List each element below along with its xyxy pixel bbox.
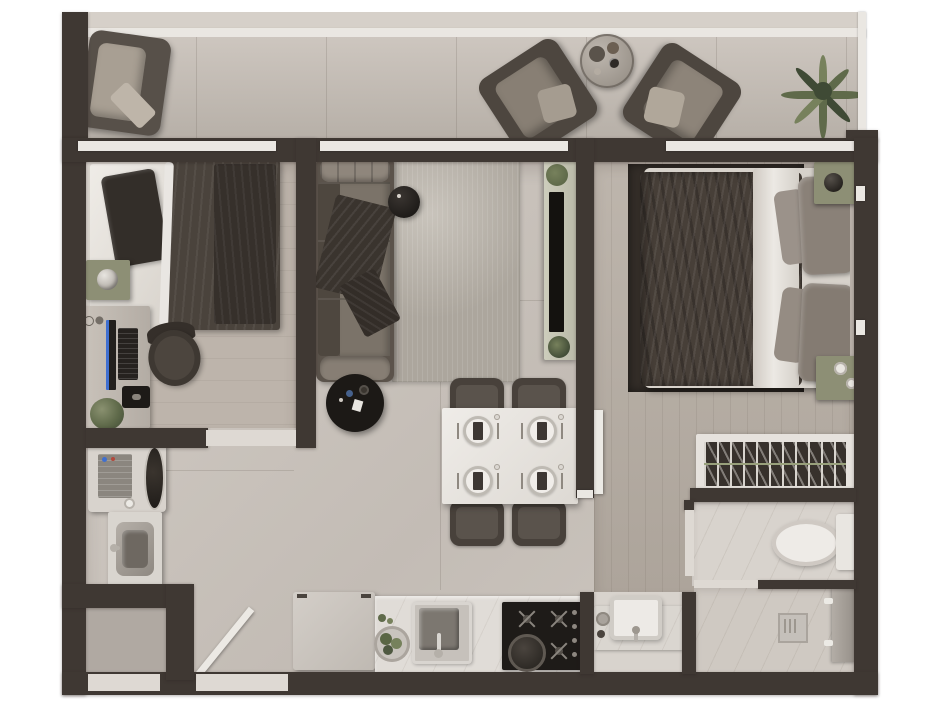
- drain-grate: [784, 619, 798, 633]
- burner: [548, 640, 570, 662]
- wall-vanity-shower: [682, 592, 696, 674]
- window-mark-right-top: [856, 186, 865, 201]
- place-setting: [454, 414, 502, 448]
- threshold-bedroom1-door: [206, 430, 296, 446]
- mouse-pad: [122, 386, 150, 408]
- glass: [494, 464, 500, 470]
- sink-faucet: [110, 544, 118, 552]
- glass: [494, 414, 500, 420]
- floor-lamp: [388, 186, 420, 218]
- knife: [561, 423, 563, 439]
- kitchen-sink: [412, 602, 472, 664]
- wall-wc-shower: [758, 580, 856, 589]
- cooktop-knob: [572, 610, 577, 615]
- kitchen-faucet-base: [434, 649, 443, 658]
- tv-sideboard: [544, 160, 578, 360]
- dining-chair: [512, 500, 566, 546]
- balcony-right-railing: [858, 12, 866, 138]
- armchair-pillow: [536, 83, 578, 125]
- wall-balcony-left-pier: [62, 12, 88, 138]
- bedroom-2: [628, 162, 868, 402]
- vanity-faucet-base: [632, 626, 640, 634]
- potted-palm: [782, 44, 864, 138]
- coffee-table: [326, 374, 384, 432]
- wall-bedroom1-bottom: [86, 428, 208, 448]
- keyboard: [118, 328, 138, 380]
- threshold-wc-door: [685, 510, 694, 576]
- window-sill-living: [320, 141, 568, 151]
- refrigerator: [293, 592, 375, 670]
- wall-bedroom1-living: [296, 138, 316, 448]
- cooktop-knob: [572, 624, 577, 629]
- frying-pan: [508, 634, 546, 672]
- balcony-floor: [66, 37, 866, 138]
- balcony-railing: [66, 28, 866, 37]
- fork: [457, 473, 459, 489]
- sideboard-plant-bottom: [548, 336, 570, 358]
- washing-machine: [88, 440, 166, 512]
- window-sill-bedroom2: [666, 141, 856, 151]
- sofa: [316, 156, 394, 382]
- wall-left-exterior: [62, 138, 86, 695]
- lamp-glint: [397, 194, 401, 198]
- burner: [548, 608, 570, 630]
- vanity-tray: [596, 612, 610, 626]
- bedroom-1: [80, 158, 310, 434]
- glass-decor-ball: [97, 269, 118, 290]
- napkin: [473, 472, 483, 490]
- greens: [383, 645, 393, 655]
- washer-led-red: [111, 457, 115, 461]
- dining-table: [442, 408, 578, 504]
- toilet-bowl: [772, 520, 840, 566]
- balcony-round-table: [580, 34, 634, 88]
- loose-greens: [378, 614, 386, 622]
- balcony-armchair-left: [78, 29, 173, 137]
- table-plate: [589, 46, 605, 62]
- bedroom2-door-leaf: [594, 410, 603, 494]
- threshold-entry-door: [196, 674, 288, 691]
- floor-plan: [0, 0, 943, 708]
- cooktop: [502, 602, 582, 670]
- fridge-hinge: [361, 594, 371, 598]
- palm-center: [814, 82, 832, 100]
- balcony-tile-seam: [456, 37, 457, 138]
- cooktop-knob: [572, 638, 577, 643]
- balcony-tile-seam: [326, 37, 327, 138]
- table-cup: [609, 58, 619, 68]
- decor-round-white: [834, 362, 847, 375]
- threshold-shower-door: [694, 580, 758, 588]
- wall-wardrobe-bottom: [690, 488, 856, 502]
- table-decor-blue: [346, 390, 353, 397]
- balcony-edge-band: [66, 12, 866, 29]
- knife: [561, 473, 563, 489]
- wall-kitchen-vanity: [580, 592, 594, 674]
- place-setting: [518, 414, 566, 448]
- place-setting: [518, 464, 566, 498]
- table-lamp: [824, 173, 843, 192]
- bed-blanket-dark: [214, 164, 276, 324]
- utility-sink: [108, 512, 162, 586]
- sideboard-plant-top: [546, 164, 568, 186]
- table-decor-plate: [359, 385, 369, 395]
- washer-cup: [124, 498, 135, 509]
- cooktop-knob: [572, 652, 577, 657]
- shower-handle-top: [824, 598, 833, 604]
- napkin: [537, 422, 547, 440]
- threshold-bottom-left: [88, 674, 160, 691]
- wardrobe-interior: [704, 442, 846, 486]
- bedside-table: [86, 260, 130, 300]
- washer-control-panel: [98, 454, 132, 498]
- desk: [80, 306, 150, 428]
- open-wardrobe: [696, 434, 858, 494]
- fork: [521, 473, 523, 489]
- desk-plant: [90, 398, 124, 430]
- napkin: [473, 422, 483, 440]
- wall-right-exterior: [854, 138, 878, 695]
- monitor: [106, 320, 116, 390]
- fork: [457, 423, 459, 439]
- shower-handle-bottom: [824, 640, 833, 646]
- television: [549, 192, 564, 332]
- kitchen: [293, 592, 583, 676]
- washer-door: [144, 446, 165, 510]
- glass: [558, 464, 564, 470]
- fork: [521, 423, 523, 439]
- toilet-cistern: [836, 514, 856, 570]
- glass: [558, 414, 564, 420]
- vanity: [594, 596, 682, 652]
- wall-living-bedroom2: [576, 138, 594, 498]
- napkin: [537, 472, 547, 490]
- table-plate: [607, 42, 619, 54]
- wall-entry-closet-right: [166, 584, 194, 680]
- place-setting: [454, 464, 502, 498]
- dining-chair: [450, 500, 504, 546]
- washer-led-blue: [102, 457, 107, 462]
- sink-basin-inner: [122, 530, 148, 568]
- hanger-rail: [704, 463, 846, 465]
- wall-wc-left-stub: [684, 500, 694, 510]
- entry-closet-floor: [86, 606, 168, 676]
- table-decor-card: [352, 399, 364, 412]
- shower-column: [832, 588, 856, 662]
- bowl-of-greens: [374, 626, 410, 662]
- window-mark-right-bottom: [856, 320, 865, 335]
- dining-area: [442, 376, 582, 548]
- knife: [497, 473, 499, 489]
- shower-drain: [778, 613, 808, 643]
- window-sill-bedroom1: [78, 141, 276, 151]
- wall-end-cap: [577, 490, 593, 498]
- fridge-hinge: [297, 594, 307, 598]
- balcony-tile-seam: [196, 37, 197, 138]
- laundry: [88, 440, 168, 590]
- vanity-soap: [597, 630, 605, 638]
- office-chair: [142, 318, 207, 391]
- burner: [516, 608, 538, 630]
- table-cup-small: [594, 68, 601, 75]
- mouse: [132, 394, 141, 400]
- table-decor-dot: [339, 398, 343, 402]
- knife: [497, 423, 499, 439]
